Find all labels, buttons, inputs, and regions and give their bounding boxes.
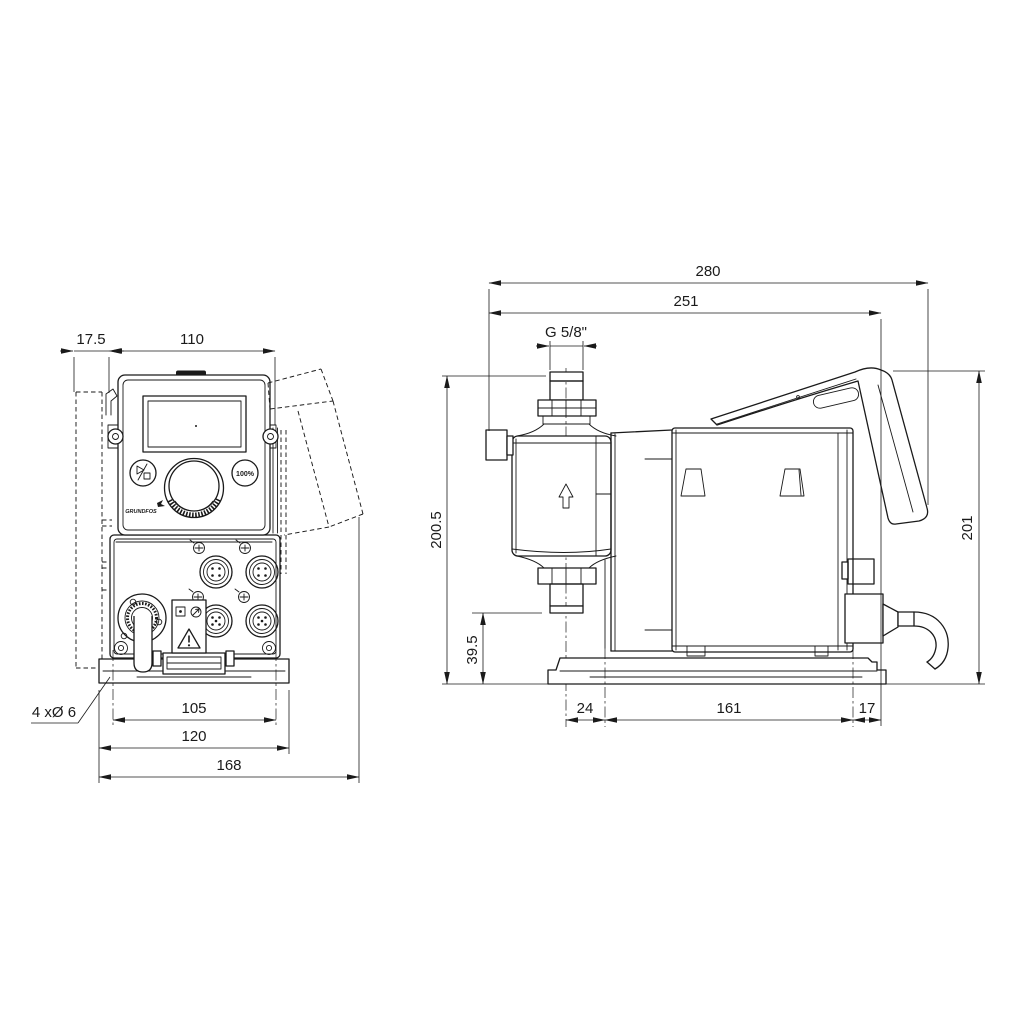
dim-connection-thread: G 5/8": [545, 324, 587, 341]
dim-bracket-offset: 17.5: [76, 331, 105, 348]
dim-overall-width: 168: [216, 757, 241, 774]
dim-base-front-offset: 24: [577, 700, 594, 717]
dimensional-drawing: 100% GRUNDFOS: [0, 0, 1024, 1024]
dim-base-rear-offset: 17: [859, 700, 876, 717]
rear-connections: [842, 559, 948, 669]
max-capacity-button[interactable]: 100%: [232, 460, 258, 486]
dim-width: 110: [180, 331, 204, 348]
dim-height-to-connection: 200.5: [428, 511, 445, 549]
start-stop-button[interactable]: [130, 460, 156, 486]
front-view: 100% GRUNDFOS: [31, 331, 363, 783]
hinge-screw-icon: [263, 429, 278, 444]
dim-hole-spacing: 105: [181, 700, 206, 717]
dim-base-width: 120: [181, 728, 206, 745]
wall-bracket-hook: [106, 389, 117, 415]
hood-grip-recess: [812, 386, 860, 409]
hinge-screw-icon: [108, 429, 123, 444]
bottom-coupling-slot: [153, 651, 234, 674]
control-panel: 100% GRUNDFOS: [108, 371, 278, 536]
cable-gland-block: [845, 594, 883, 643]
discharge-thread: [550, 381, 583, 400]
dim-height-to-valve: 39.5: [464, 635, 481, 664]
mounting-hole-callout: 4 xØ 6: [31, 677, 110, 723]
suction-thread: [550, 584, 583, 606]
motor-housing: [672, 428, 853, 656]
dim-depth-without-cover: 251: [673, 293, 698, 310]
click-wheel[interactable]: [165, 459, 224, 518]
dim-base-length: 161: [716, 700, 741, 717]
brand-logo-text: GRUNDFOS: [125, 509, 157, 515]
discharge-nut: [538, 400, 596, 416]
gland-cone: [883, 604, 898, 636]
hood-open-phantom: [268, 369, 363, 574]
power-cable-side: [914, 612, 948, 669]
deaeration-valve-knob: [486, 430, 513, 460]
drawing-page: 100% GRUNDFOS: [0, 0, 1024, 1024]
max-capacity-label: 100%: [236, 471, 255, 478]
warning-label: [172, 600, 206, 653]
head-bracket: [605, 430, 672, 651]
suction-nut: [538, 568, 596, 584]
side-view: 280 251 G 5/8" 200.5 39.5 24 161 17: [428, 263, 985, 727]
dim-mounting-holes: 4 xØ 6: [32, 704, 76, 721]
dim-overall-depth: 280: [695, 263, 720, 280]
power-cable: [134, 616, 152, 672]
dim-overall-height: 201: [959, 515, 976, 540]
